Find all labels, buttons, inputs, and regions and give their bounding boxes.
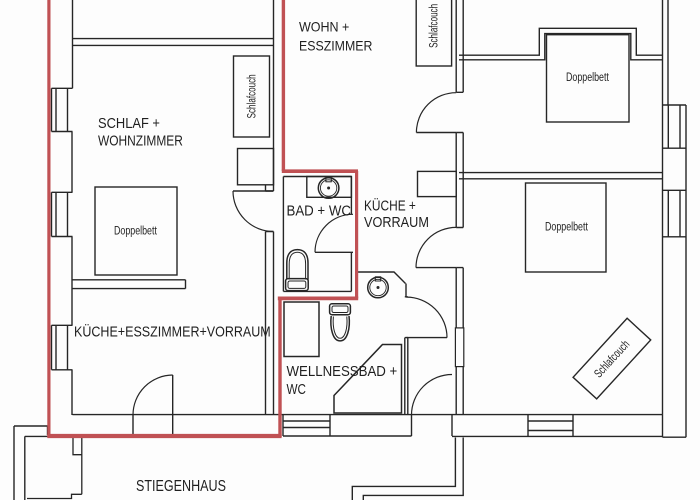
svg-text:KÜCHE+ESSZIMMER+VORRAUM: KÜCHE+ESSZIMMER+VORRAUM [74, 324, 271, 340]
svg-text:Doppelbett: Doppelbett [545, 220, 588, 234]
svg-text:ESSZIMMER: ESSZIMMER [299, 38, 372, 54]
svg-text:WC: WC [287, 381, 306, 398]
svg-text:BAD + WC: BAD + WC [287, 202, 351, 219]
svg-text:STIEGENHAUS: STIEGENHAUS [136, 478, 226, 496]
svg-text:VORRAUM: VORRAUM [364, 214, 429, 230]
svg-text:KÜCHE +: KÜCHE + [364, 197, 416, 213]
svg-text:Schlafcouch: Schlafcouch [428, 4, 441, 48]
svg-text:Doppelbett: Doppelbett [114, 224, 157, 238]
svg-text:WOHNZIMMER: WOHNZIMMER [98, 132, 183, 149]
svg-text:Doppelbett: Doppelbett [566, 71, 609, 85]
svg-text:Schlafcouch: Schlafcouch [246, 74, 259, 118]
svg-text:WOHN +: WOHN + [299, 19, 350, 35]
svg-text:SCHLAF +: SCHLAF + [98, 114, 160, 131]
svg-text:WELLNESSBAD +: WELLNESSBAD + [287, 362, 398, 379]
